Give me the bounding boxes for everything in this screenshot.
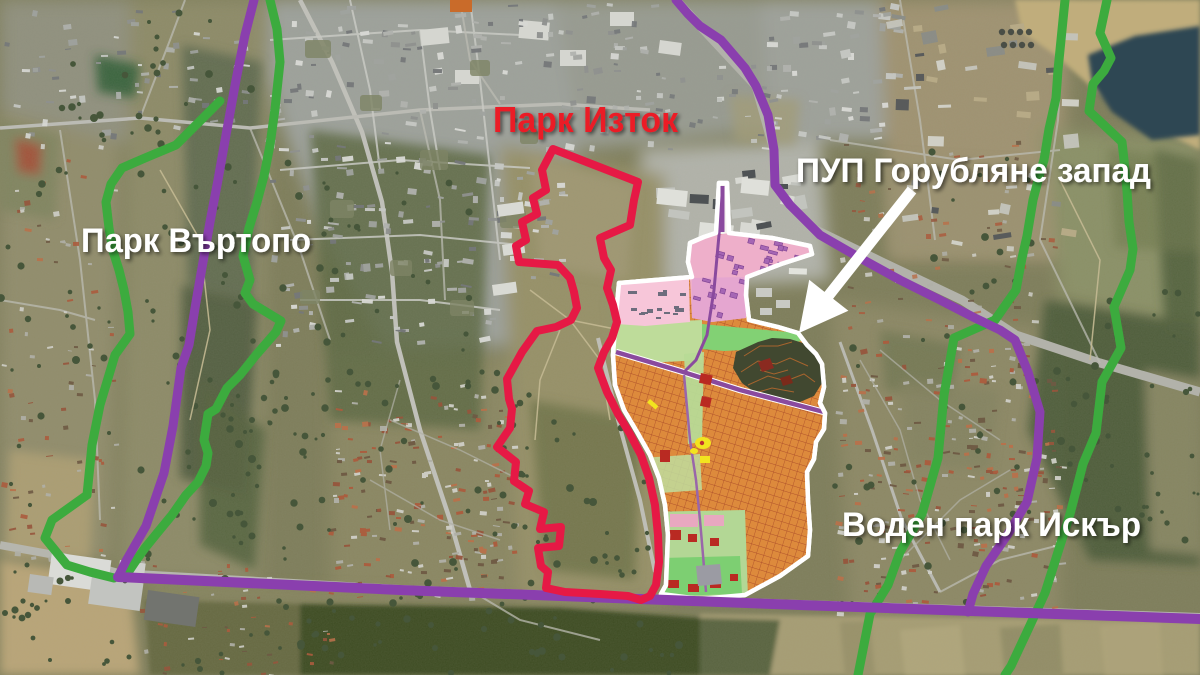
svg-text:ПУП Горубляне запад: ПУП Горубляне запад bbox=[796, 152, 1151, 190]
svg-text:Парк Изток: Парк Изток bbox=[493, 99, 679, 140]
svg-text:Воден парк Искър: Воден парк Искър bbox=[842, 506, 1141, 544]
svg-text:Парк Въртопо: Парк Въртопо bbox=[81, 222, 311, 260]
